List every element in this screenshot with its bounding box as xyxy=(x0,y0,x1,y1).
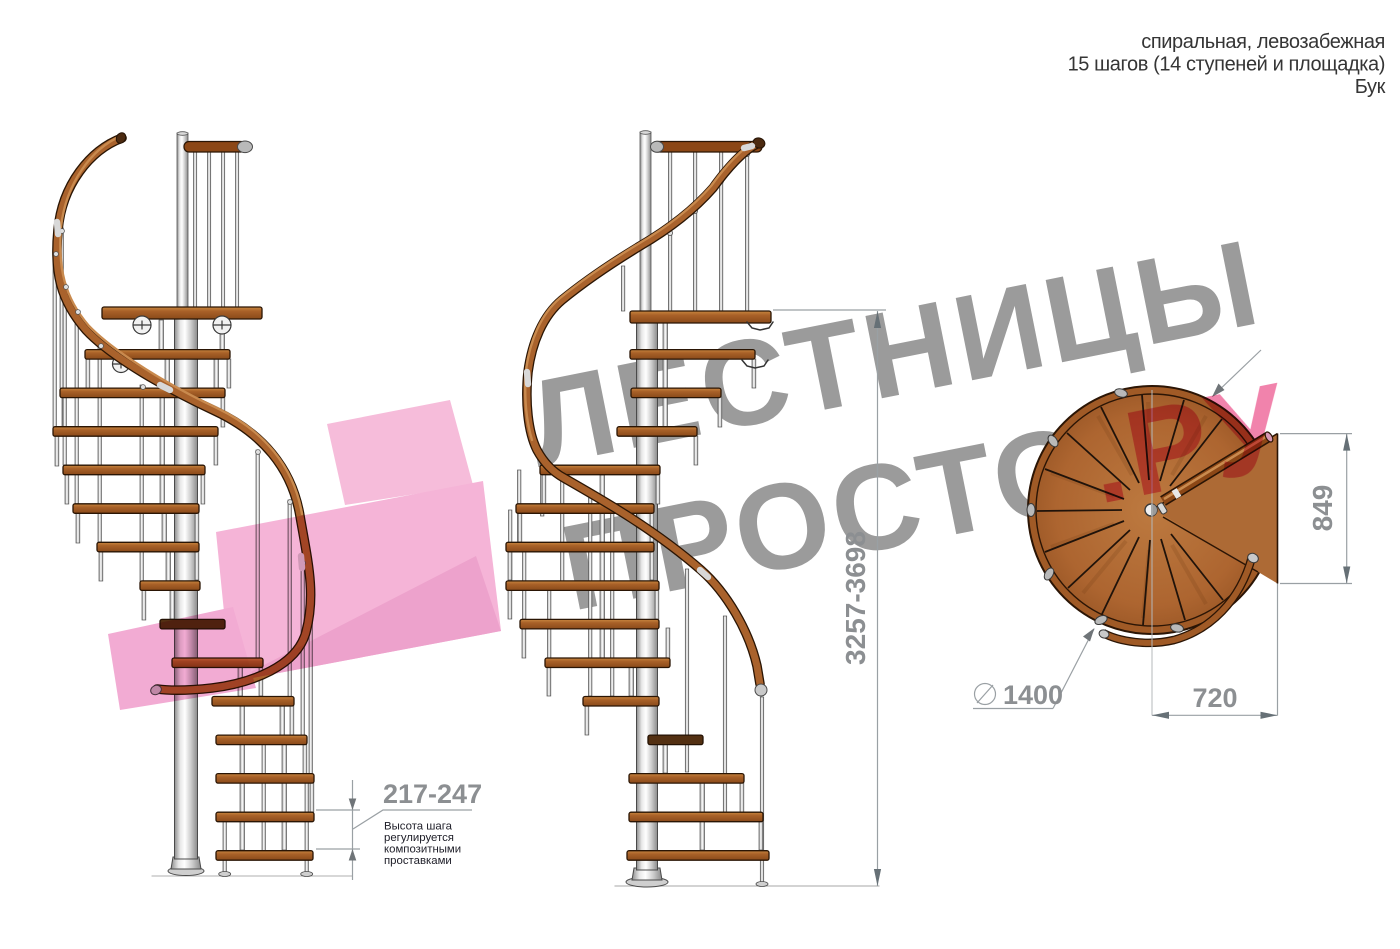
svg-text:регулируется: регулируется xyxy=(384,832,454,844)
svg-text:Бук: Бук xyxy=(1355,76,1386,98)
svg-text:композитными: композитными xyxy=(384,844,461,856)
svg-text:217-247: 217-247 xyxy=(383,779,482,809)
svg-text:Высота шага: Высота шага xyxy=(384,821,453,833)
svg-text:15 шагов (14 ступеней и площад: 15 шагов (14 ступеней и площадка) xyxy=(1068,54,1385,76)
svg-text:720: 720 xyxy=(1192,683,1237,713)
svg-text:1400: 1400 xyxy=(1003,680,1063,710)
svg-text:3257-3698: 3257-3698 xyxy=(840,531,871,665)
svg-text:849: 849 xyxy=(1307,485,1338,532)
svg-text:проставками: проставками xyxy=(384,855,452,867)
svg-text:спиральная, левозабежная: спиральная, левозабежная xyxy=(1141,31,1385,53)
